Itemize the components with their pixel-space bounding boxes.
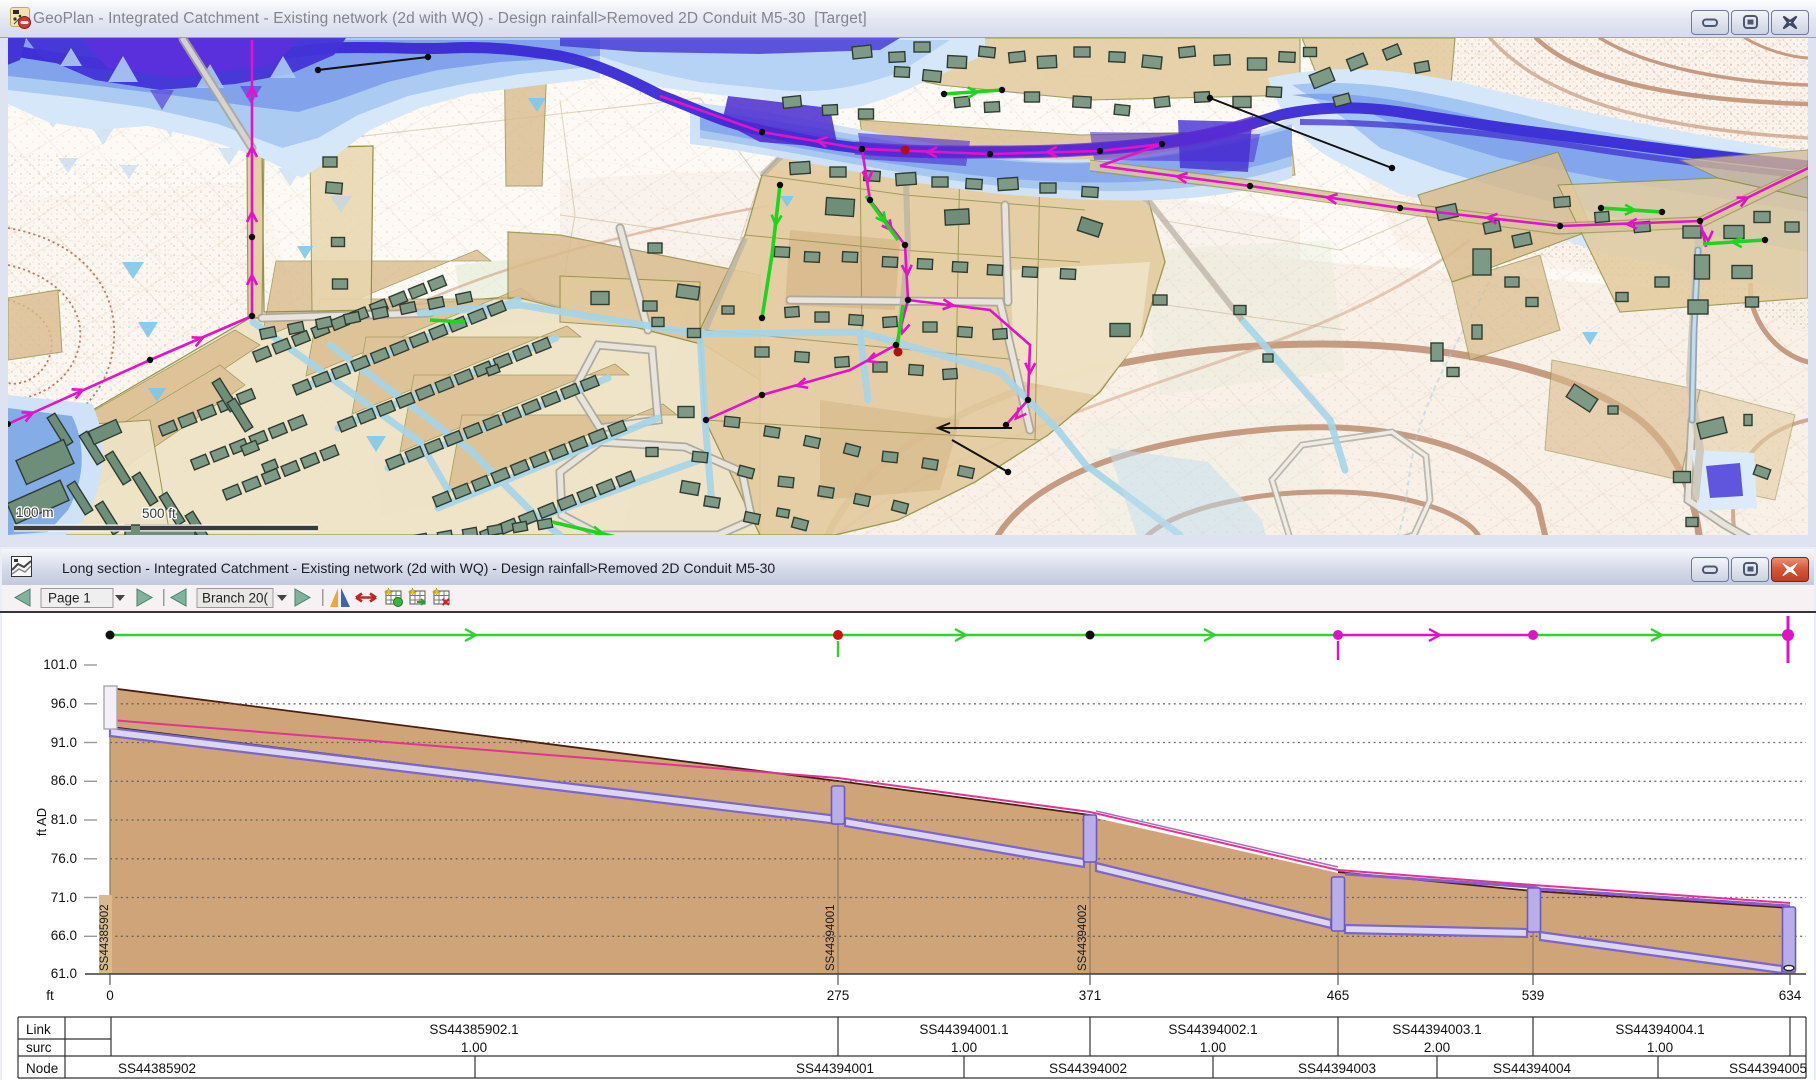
svg-text:SS44394002: SS44394002 (1077, 904, 1089, 971)
svg-text:86.0: 86.0 (51, 773, 77, 788)
svg-text:SS44394004.1: SS44394004.1 (1615, 1022, 1704, 1037)
svg-text:275: 275 (827, 988, 850, 1003)
svg-text:Link: Link (26, 1022, 51, 1037)
svg-text:SS44394003: SS44394003 (1298, 1061, 1376, 1076)
svg-text:SS44394001: SS44394001 (796, 1061, 874, 1076)
svg-text:SS44394001.1: SS44394001.1 (919, 1022, 1008, 1037)
svg-text:SS44385902: SS44385902 (118, 1061, 196, 1076)
svg-text:371: 371 (1079, 988, 1102, 1003)
svg-text:1.00: 1.00 (951, 1040, 977, 1055)
svg-text:SS44394005: SS44394005 (1729, 1061, 1807, 1076)
svg-text:SS44385902: SS44385902 (99, 904, 111, 971)
svg-text:81.0: 81.0 (51, 812, 77, 827)
svg-text:539: 539 (1522, 988, 1545, 1003)
svg-text:91.0: 91.0 (51, 735, 77, 750)
svg-text:SS44394001: SS44394001 (825, 904, 837, 971)
svg-text:SS44394002.1: SS44394002.1 (1168, 1022, 1257, 1037)
svg-text:61.0: 61.0 (51, 966, 77, 981)
svg-text:ft AD: ft AD (34, 808, 49, 836)
svg-text:1.00: 1.00 (1647, 1040, 1673, 1055)
svg-text:SS44394003.1: SS44394003.1 (1392, 1022, 1481, 1037)
svg-text:Node: Node (26, 1061, 58, 1076)
svg-text:634: 634 (1779, 988, 1802, 1003)
svg-text:66.0: 66.0 (51, 928, 77, 943)
svg-text:SS44394002: SS44394002 (1049, 1061, 1127, 1076)
svg-text:surc: surc (26, 1040, 52, 1055)
svg-text:101.0: 101.0 (43, 657, 77, 672)
svg-text:1.00: 1.00 (461, 1040, 487, 1055)
svg-text:100 m: 100 m (16, 505, 54, 520)
svg-text:SS44385902.1: SS44385902.1 (429, 1022, 518, 1037)
svg-text:96.0: 96.0 (51, 696, 77, 711)
svg-text:Page 1: Page 1 (48, 591, 91, 606)
svg-text:0: 0 (106, 988, 114, 1003)
svg-text:SS44394004: SS44394004 (1493, 1061, 1572, 1076)
svg-text:71.0: 71.0 (51, 890, 77, 905)
svg-text:2.00: 2.00 (1424, 1040, 1450, 1055)
svg-text:500 ft: 500 ft (142, 506, 176, 521)
svg-text:76.0: 76.0 (51, 851, 77, 866)
svg-text:ft: ft (46, 988, 54, 1003)
svg-text:1.00: 1.00 (1200, 1040, 1226, 1055)
svg-text:465: 465 (1327, 988, 1350, 1003)
svg-text:Branch 20(: Branch 20( (202, 591, 269, 606)
